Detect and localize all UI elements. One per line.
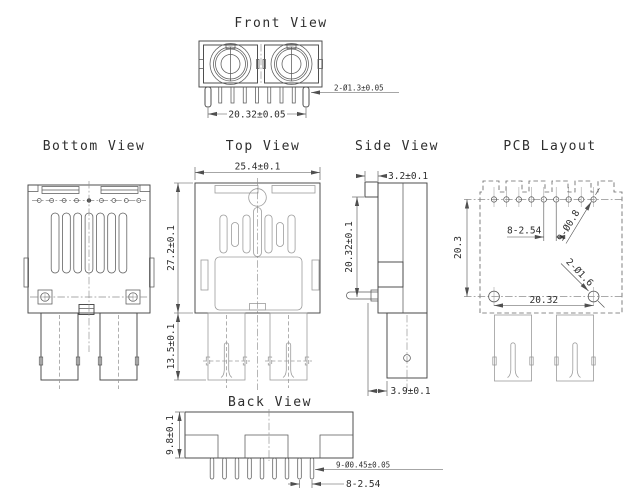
pcb-layout-title: PCB Layout xyxy=(503,139,596,154)
pcb-height-dim: 20.3 xyxy=(453,236,464,259)
back-view: Back View 9.8±0.1 9-Ø0.45± xyxy=(165,395,443,490)
pcb-large-holes-dim: 2-Ø1.6 xyxy=(563,257,595,289)
back-view-pins xyxy=(210,458,314,479)
pcb-dimensions: 8-2.54 9-Ø0.8 2-Ø1.6 20.32 20.3 xyxy=(453,188,605,307)
back-view-title: Back View xyxy=(228,395,312,410)
top-leg-height-dim: 13.5±0.1 xyxy=(166,323,177,369)
back-view-body xyxy=(185,409,353,461)
back-pin-dia-dim: 9-Ø0.45±0.05 xyxy=(336,461,390,470)
bottom-view-title: Bottom View xyxy=(43,139,146,154)
back-view-dimensions: 9.8±0.1 9-Ø0.45±0.05 8-2.54 xyxy=(165,412,443,490)
back-pitch-dim: 8-2.54 xyxy=(346,479,381,490)
side-view-body xyxy=(347,182,427,313)
pcb-layout: PCB Layout xyxy=(453,139,624,381)
pcb-span-dim: 20.32 xyxy=(529,295,558,306)
front-view-pins xyxy=(205,87,309,107)
top-view-dimensions: 25.4±0.1 27.2±0.1 13.5±0.1 xyxy=(166,162,320,381)
side-flange-dim: 3.2±0.1 xyxy=(388,171,428,182)
front-view-body xyxy=(199,41,323,87)
top-view-title: Top View xyxy=(226,139,301,154)
top-view-body xyxy=(195,178,320,390)
side-view-title: Side View xyxy=(355,139,439,154)
pcb-outline xyxy=(480,181,622,313)
bottom-view-body xyxy=(24,181,154,352)
top-view: Top View xyxy=(166,139,320,390)
pcb-small-holes-dim: 9-Ø0.8 xyxy=(555,208,582,243)
front-pitch-dim: 20.32±0.05 xyxy=(228,109,285,120)
pcb-hole-pitch-dim: 8-2.54 xyxy=(507,226,542,237)
engineering-drawing-sheet: Front View xyxy=(0,0,632,492)
side-view: Side View 3.2±0.1 20.32±0.1 xyxy=(344,139,439,397)
side-leg-dim: 3.9±0.1 xyxy=(391,386,431,397)
back-height-dim: 9.8±0.1 xyxy=(165,415,176,455)
side-view-leg xyxy=(387,313,427,390)
front-pin-dia-dim: 2-Ø1.3±0.05 xyxy=(334,84,384,93)
side-height-dim: 20.32±0.1 xyxy=(344,221,355,273)
top-body-height-dim: 27.2±0.1 xyxy=(166,225,177,271)
front-view: Front View xyxy=(199,16,399,120)
drawing-canvas: Front View xyxy=(0,0,632,492)
pcb-legs xyxy=(493,315,595,381)
front-view-title: Front View xyxy=(234,16,327,31)
bottom-view: Bottom View xyxy=(24,139,154,389)
top-width-dim: 25.4±0.1 xyxy=(235,162,281,173)
